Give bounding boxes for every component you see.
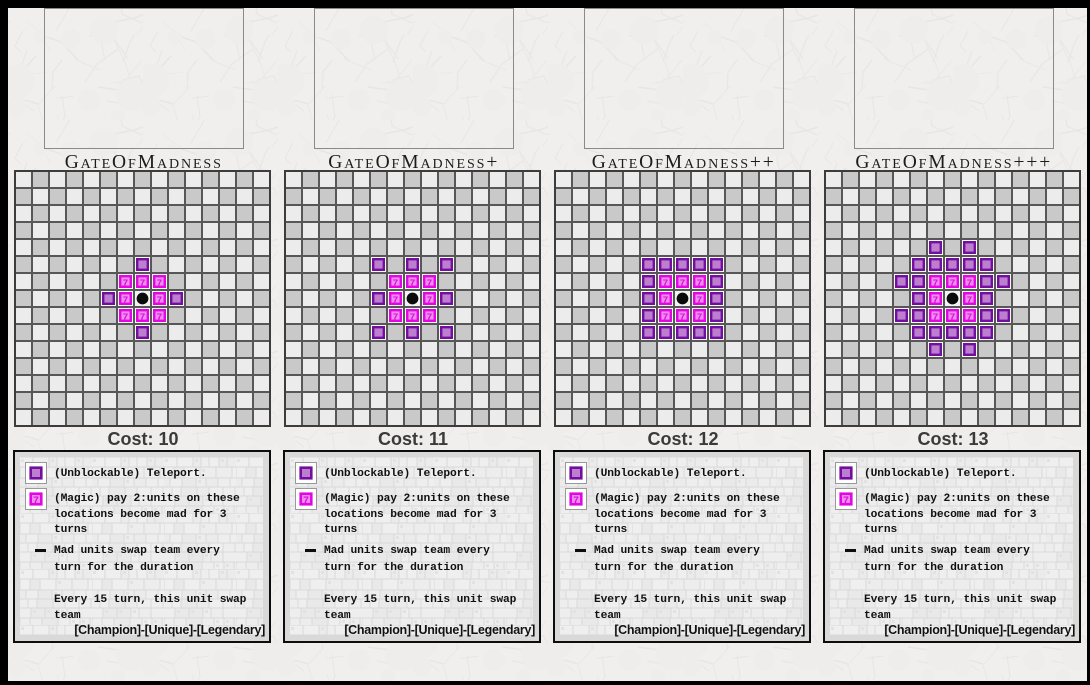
- svg-text:7: 7: [303, 496, 309, 507]
- svg-text:7: 7: [967, 311, 973, 322]
- svg-text:7: 7: [950, 311, 956, 322]
- svg-text:7: 7: [843, 496, 849, 507]
- svg-text:7: 7: [410, 277, 416, 288]
- svg-text:7: 7: [697, 311, 703, 322]
- svg-text:7: 7: [967, 277, 973, 288]
- svg-text:7: 7: [680, 277, 686, 288]
- svg-text:7: 7: [123, 311, 129, 322]
- svg-text:7: 7: [410, 311, 416, 322]
- svg-text:7: 7: [157, 311, 163, 322]
- svg-text:7: 7: [123, 277, 129, 288]
- svg-text:7: 7: [950, 277, 956, 288]
- svg-text:7: 7: [663, 294, 669, 305]
- svg-text:7: 7: [573, 496, 579, 507]
- svg-text:7: 7: [393, 277, 399, 288]
- svg-text:7: 7: [663, 277, 669, 288]
- svg-text:7: 7: [427, 311, 433, 322]
- svg-text:7: 7: [967, 294, 973, 305]
- svg-text:7: 7: [33, 496, 39, 507]
- svg-text:7: 7: [427, 277, 433, 288]
- svg-text:7: 7: [157, 277, 163, 288]
- svg-text:7: 7: [393, 294, 399, 305]
- svg-text:7: 7: [933, 294, 939, 305]
- svg-text:7: 7: [697, 294, 703, 305]
- svg-text:7: 7: [123, 294, 129, 305]
- svg-text:7: 7: [427, 294, 433, 305]
- svg-text:7: 7: [157, 294, 163, 305]
- svg-text:7: 7: [680, 311, 686, 322]
- svg-text:7: 7: [697, 277, 703, 288]
- svg-text:7: 7: [663, 311, 669, 322]
- svg-text:7: 7: [140, 277, 146, 288]
- svg-text:7: 7: [140, 311, 146, 322]
- svg-text:7: 7: [933, 277, 939, 288]
- svg-text:7: 7: [933, 311, 939, 322]
- svg-text:7: 7: [393, 311, 399, 322]
